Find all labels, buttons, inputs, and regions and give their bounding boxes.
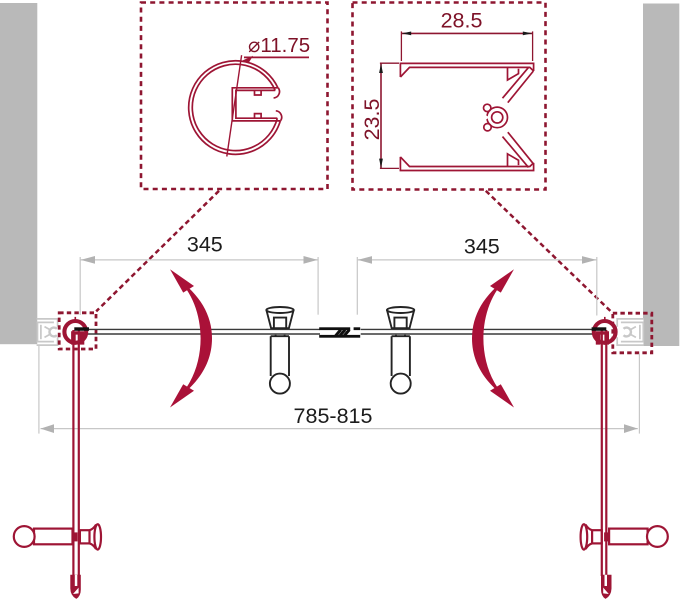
svg-text:23.5: 23.5 (360, 99, 384, 141)
svg-text:345: 345 (464, 235, 500, 259)
svg-text:⌀11.75: ⌀11.75 (248, 34, 310, 57)
svg-text:785-815: 785-815 (294, 404, 373, 428)
svg-text:28.5: 28.5 (441, 9, 483, 33)
svg-text:345: 345 (187, 233, 223, 257)
